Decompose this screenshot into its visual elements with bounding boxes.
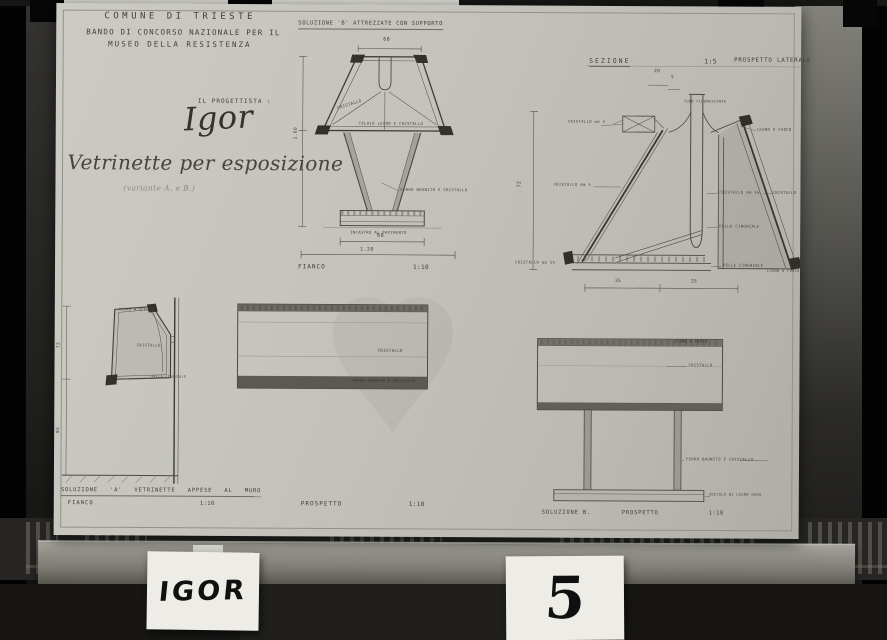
lateral-elevation-heading: PROSPETTO LATERALE (734, 59, 811, 65)
competitor-name: IGOR (157, 575, 248, 608)
fianco-b-caption: FIANCO (298, 264, 326, 270)
dim-lower: 95 (57, 427, 62, 433)
dim-c: 35 (615, 280, 621, 285)
glass-2-label: CRISTALLO mm 5 (553, 183, 591, 187)
wall-case-top-label: VETRO A SCELTA (119, 308, 154, 312)
glass-4-label: CRISTALLO mm 5½ (719, 191, 759, 195)
entry-number: 5 (543, 564, 588, 632)
dim-height: 1.60 (295, 127, 300, 139)
dim-a: 20 (654, 70, 660, 75)
competition-title-line: BANDO DI CONCORSO NAZIONALE PER IL (86, 28, 280, 37)
section-heading: SEZIONE (589, 58, 630, 67)
floor-shadow-center (240, 584, 520, 640)
front-a-caption: PROSPETTO (301, 501, 343, 507)
section-scale: 1:5 (704, 58, 717, 65)
dim-upper: 72 (58, 342, 63, 348)
lamp-label: TUBO FLUORESCENTE (684, 100, 727, 104)
wall-case-skin-label: PELLE CINGHIALE (151, 376, 186, 379)
skin-2-label: PELLE CINGHIALE (723, 264, 763, 268)
competitor-name-card: IGOR (146, 551, 259, 631)
photo-of-competition-drawing: { "cards": { "name": "IGOR", "number": "… (0, 0, 887, 640)
sheet-title: Vetrinette per esposizione (68, 152, 344, 173)
front-a-frame-label: FERRO BRUNITO E CRISTALLO (352, 380, 415, 384)
wood-1-label: LEGNO A FUOCO (757, 128, 792, 132)
municipality-title: COMUNE DI TRIESTE (104, 12, 256, 22)
front-b-view: PROSPETTO (622, 511, 659, 517)
frame-label: TELAIO LEGNO E CRISTALLO (359, 122, 423, 126)
section-drawing (529, 66, 801, 293)
fianco-a-scale: 1:10 (200, 502, 215, 508)
section-dim-height: 72 (517, 181, 522, 188)
front-b-wood-label: LEGNO A FUOCO (675, 340, 708, 344)
designer-signature: Igor (183, 100, 254, 135)
front-b-legs-label: FERRO BRUNITO E CRISTALLO (686, 457, 753, 461)
drawing-sheet: COMUNE DI TRIESTE BANDO DI CONCORSO NAZI… (54, 3, 802, 539)
front-b-caption: SOLUZIONE B. (542, 511, 591, 517)
front-b-glass-label: CRISTALLO (689, 363, 713, 367)
sheet-subtitle: (variante A. e B.) (123, 184, 195, 192)
glass-1-label: CRISTALLO mm 5 (568, 120, 606, 124)
front-b-plinth-label: ZOCCOLO DI LEGNO DURO (709, 493, 762, 497)
skin-1-label: PELLE CINGHIALE (719, 225, 759, 229)
dim-b: 5 (671, 76, 674, 81)
prospetto-b-drawing (537, 339, 769, 502)
fianco-b-scale: 1:10 (413, 265, 429, 271)
fianco-a-drawing (62, 297, 179, 484)
front-a-scale: 1:10 (409, 502, 425, 508)
front-a-glass-label: CRISTALLO (378, 349, 403, 353)
fianco-a-view: FIANCO (68, 501, 94, 507)
glass-3-label: CRISTALLO mm 5½ (515, 260, 555, 264)
museum-title-line: MUSEO DELLA RESISTENZA (108, 40, 251, 48)
stem-label: FERRO BRUNITO E CRISTALLO (400, 188, 467, 192)
dim-d: 25 (691, 280, 697, 285)
dim-top: 60 (383, 38, 390, 43)
wall-case-glass-label: CRISTALLO (137, 343, 161, 347)
top-clamp (843, 0, 877, 27)
dim-base: 60 (377, 234, 384, 239)
glass-5-label: CRISTALLO (772, 191, 796, 195)
front-b-scale: 1:10 (709, 511, 724, 517)
solution-a-caption: SOLUZIONE 'A' VETRINETTE APPESE AL MURO (61, 488, 261, 497)
entry-number-card: 5 (506, 556, 625, 640)
watermark (332, 297, 453, 433)
dim-width: 1.20 (360, 248, 374, 253)
solution-b-heading: SOLUZIONE 'B' ATTREZZATE CON SUPPORTO (298, 21, 443, 29)
wood-2-label: LEGNO A FUOCO (767, 270, 800, 274)
